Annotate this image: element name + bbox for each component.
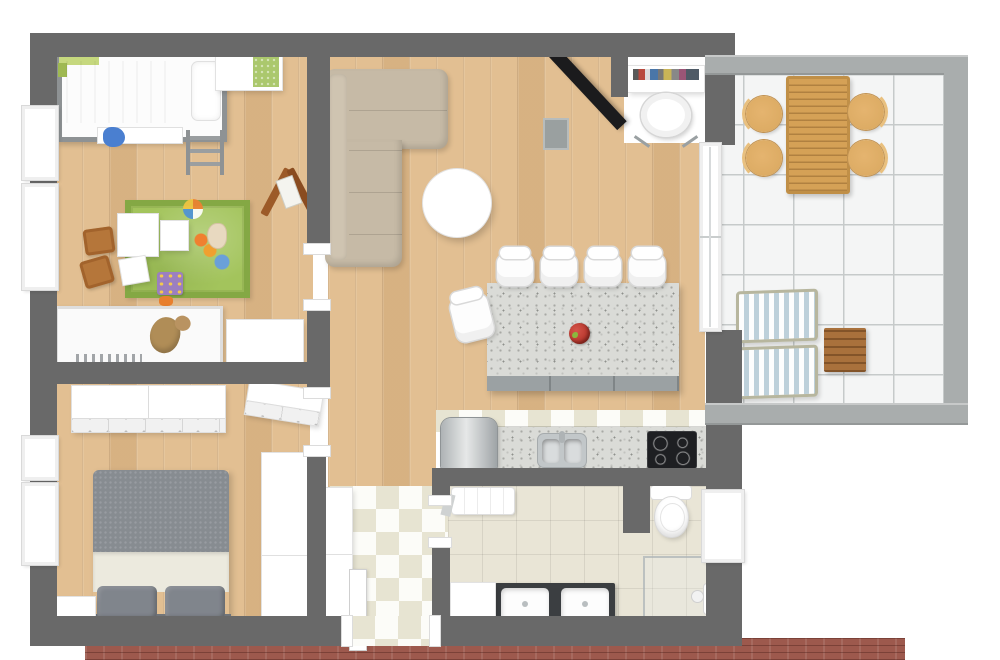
entry-desk: [628, 66, 704, 92]
bar-stool-2: [541, 254, 577, 286]
kids-cabinet: [227, 320, 303, 366]
bar-stool-4: [629, 254, 665, 286]
wall-toilet-stub: [623, 486, 650, 533]
toilet-seat-line: [660, 503, 685, 532]
wall-hall-bath-lower: [432, 544, 450, 622]
sofa-seam-3: [349, 192, 402, 193]
wall-kids-living-upper: [307, 55, 330, 250]
fridge: [441, 418, 497, 469]
loft-bed-ladder: [186, 130, 224, 175]
bedroom-window-1: [22, 436, 58, 480]
cooktop: [648, 432, 696, 468]
bed-duvet: [93, 470, 229, 553]
wall-right-lower: [706, 330, 742, 646]
patio-chair-2: [746, 140, 782, 176]
play-table-2: [161, 221, 188, 250]
bar-stool-1: [497, 254, 533, 286]
sink-bowl-left: [542, 439, 560, 463]
sink-bowl-right: [564, 439, 582, 463]
toy-blue: [212, 252, 232, 272]
fruit-leaves: [572, 332, 578, 338]
blue-cloth: [103, 127, 125, 147]
entry-desk-chair: [641, 93, 691, 137]
entry-doorframe-left: [342, 616, 352, 646]
teddy-bear: [144, 313, 185, 358]
entry-doorframe-right: [430, 616, 440, 646]
kids-desk: [216, 55, 282, 90]
entry-door-gap: [352, 616, 430, 646]
island-base-drawers: [487, 376, 679, 391]
patio-side-table: [824, 328, 866, 372]
patio-chair-4: [848, 140, 884, 176]
play-stool: [119, 256, 149, 285]
toy-beige: [208, 224, 226, 248]
lounger-2: [736, 345, 818, 400]
entry-desk-books: [633, 69, 699, 80]
floor-plan-stage: [0, 0, 1000, 660]
wardrobe-split-line: [262, 555, 308, 556]
bar-stool-3: [585, 254, 621, 286]
wall-top: [30, 33, 735, 57]
bath-doorframe-bottom: [429, 538, 451, 547]
bed-pillow-right: [165, 586, 225, 619]
kids-doorframe-bottom: [304, 300, 330, 310]
kids-chair-1: [82, 226, 115, 256]
front-door-post: [543, 118, 569, 150]
teddy-bear-head: [172, 313, 192, 333]
wall-right-upper: [705, 33, 735, 145]
glass-door-divider: [700, 236, 721, 238]
wall-kitchen-back: [432, 468, 742, 486]
patio-glass-doors: [700, 143, 721, 331]
bedroom-dresser-row: [72, 386, 225, 432]
coffee-table: [423, 169, 491, 237]
kids-doorframe-top: [304, 244, 330, 254]
bathroom-window: [702, 490, 744, 562]
sofa-seam-2: [349, 150, 402, 151]
kitchen-sink: [538, 434, 586, 467]
easel: [266, 166, 312, 218]
kids-window-2: [22, 184, 58, 290]
living-floor-extension: [328, 415, 436, 490]
toy-box-purple: [157, 272, 183, 295]
toy-pinwheel: [183, 199, 203, 219]
wall-kids-bedroom: [30, 362, 330, 384]
lounger-1: [736, 289, 818, 344]
sofa-seam-1: [349, 110, 447, 111]
hallway-closets: [322, 488, 352, 622]
sofa-seam-4: [349, 234, 402, 235]
bath-doorframe-top: [429, 496, 451, 505]
wall-nook-stub: [611, 55, 628, 97]
kids-window-1: [22, 106, 58, 180]
kids-desk-green-mat: [253, 57, 279, 87]
bathroom-radiator: [452, 488, 514, 514]
play-table-1: [118, 214, 158, 256]
double-bed: [93, 470, 229, 627]
fruit-bowl: [569, 323, 590, 344]
dresser-split-line: [148, 386, 149, 432]
patio-chair-1: [746, 96, 782, 132]
vanity-faucet-left: [522, 601, 528, 607]
bedroom-doorframe-top: [304, 388, 330, 398]
patio-dining-table: [786, 76, 850, 194]
bedroom-doorframe-bottom: [304, 446, 330, 456]
patio-wall-right: [944, 55, 968, 425]
loft-bed-duvet-fold: [66, 61, 176, 123]
bed-pillow-left: [97, 586, 157, 619]
sink-faucet: [559, 431, 565, 443]
bedroom-window-2: [22, 483, 58, 565]
toilet-bowl: [655, 497, 688, 537]
patio-chair-3: [848, 94, 884, 130]
glass-door-pane-line: [709, 147, 711, 327]
wall-bedroom-hall: [307, 452, 326, 622]
sofa-backrest: [329, 74, 347, 260]
bedroom-wardrobe: [262, 453, 308, 621]
patio-wall-bottom: [705, 403, 968, 425]
vanity-faucet-right: [582, 601, 588, 607]
toy-orange-small: [159, 296, 173, 306]
shower-head: [692, 591, 703, 602]
closet-split-line: [322, 554, 352, 555]
patio-wall-top: [705, 55, 968, 75]
